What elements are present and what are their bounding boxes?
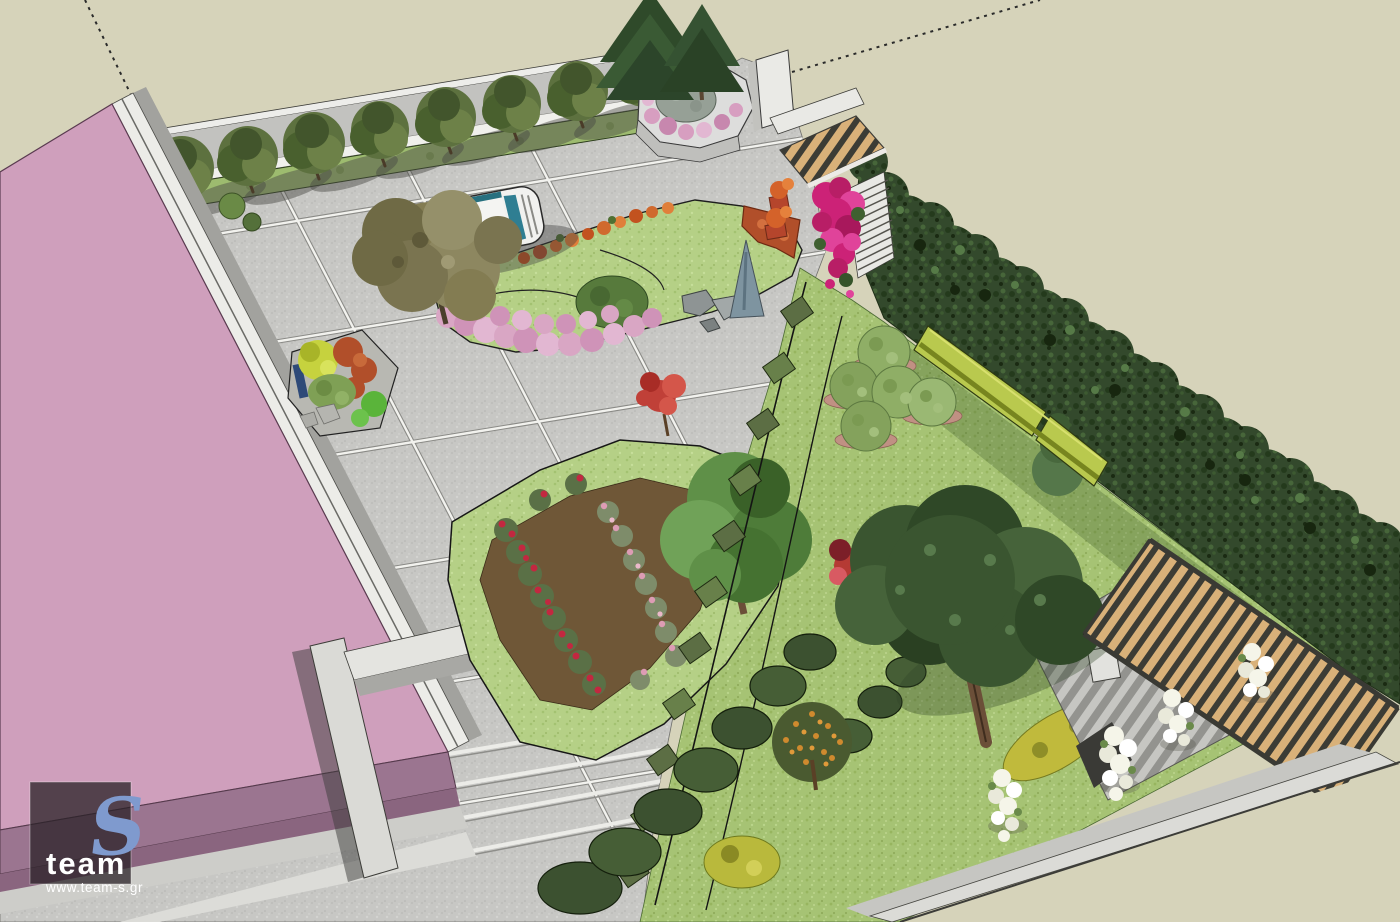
garden-render: S team www.team-s.gr xyxy=(0,0,1400,922)
logo-website: www.team-s.gr xyxy=(45,880,143,895)
watermark-logo: S team www.team-s.gr xyxy=(30,780,149,895)
logo-name: team xyxy=(46,846,126,881)
garden-render-stage: S team www.team-s.gr xyxy=(0,0,1400,922)
